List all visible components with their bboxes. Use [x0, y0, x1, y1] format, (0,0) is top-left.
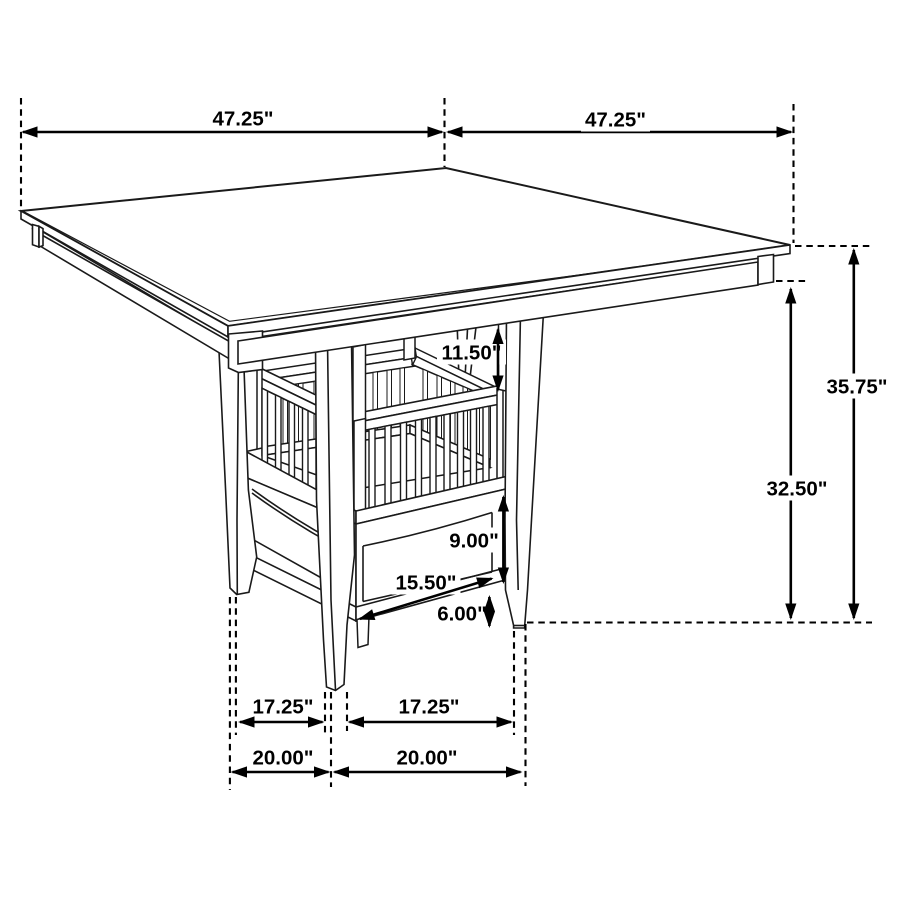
- svg-text:20.00": 20.00": [252, 746, 313, 769]
- svg-text:17.25": 17.25": [398, 695, 459, 718]
- svg-text:47.25": 47.25": [585, 108, 646, 131]
- svg-text:6.00": 6.00": [437, 602, 487, 625]
- svg-text:17.25": 17.25": [252, 695, 313, 718]
- svg-text:47.25": 47.25": [212, 107, 273, 130]
- svg-text:11.50": 11.50": [442, 341, 502, 364]
- svg-text:9.00": 9.00": [449, 529, 499, 552]
- svg-text:20.00": 20.00": [396, 746, 457, 769]
- svg-text:32.50": 32.50": [766, 477, 827, 500]
- svg-text:35.75": 35.75": [826, 375, 887, 398]
